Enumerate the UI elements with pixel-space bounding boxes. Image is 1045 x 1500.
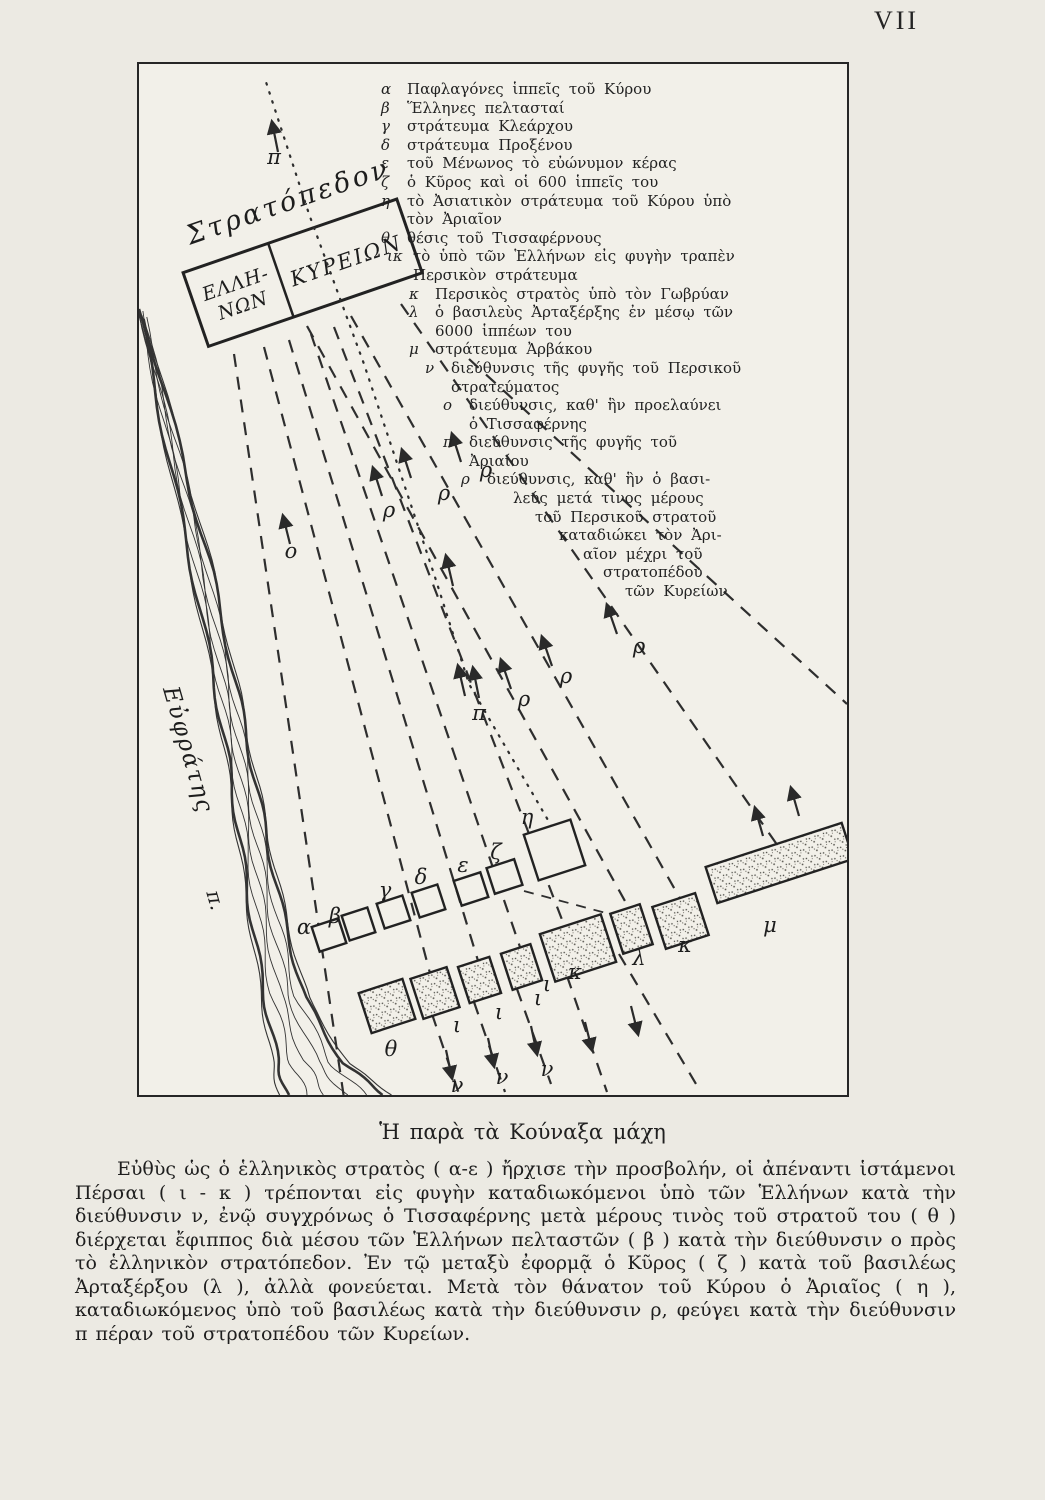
legend-text: τοῦ Μένωνος τὸ εὐώνυμον κέρας [407,154,847,173]
legend-key: ο [443,396,469,433]
map-letter-μ: μ [763,913,777,937]
map-letter-γ: γ [379,878,392,902]
map-letter-ι: ι [534,986,542,1010]
map-letter-ν: ν [451,1073,464,1095]
legend-key: ε [381,154,407,173]
legend-text: στράτευμα Ἀρβάκου [435,340,847,359]
legend-key: ρ [461,470,487,600]
legend-entry-θ: θθέσις τοῦ Τισσαφέρνους [381,229,847,248]
map-legend: αΠαφλαγόνες ἱππεῖς τοῦ ΚύρουβἝλληνες πελ… [381,80,847,601]
legend-entry-ικ: ικτὸ ὑπὸ τῶν Ἑλλήνων εἰς φυγὴν τραπὲνΠερ… [387,247,847,284]
map-letter-ν: ν [541,1057,554,1081]
legend-entry-ρ: ρδιεύθυνσις, καθ' ἣν ὁ βασι-λεύς μετά τι… [461,470,847,600]
map-letter-α: α [297,915,311,939]
map-letter-ρ: ρ [632,634,646,658]
river-name-label: Εὐφράτης [157,682,218,816]
legend-entry-β: βἝλληνες πελτασταί [381,99,847,118]
map-letter-θ: θ [385,1037,398,1061]
river-abbr-label: π. [201,886,230,912]
legend-text: τὸ Ἀσιατικὸν στράτευμα τοῦ Κύρου ὑπὸτὸν … [407,192,847,229]
legend-entry-λ: λὁ βασιλεὺς Ἀρταξέρξης ἐν μέσῳ τῶν6000 ἱ… [409,303,847,340]
legend-entry-ζ: ζὁ Κῦρος καὶ οἱ 600 ἱππεῖς του [381,173,847,192]
legend-entry-δ: δστράτευμα Προξένου [381,136,847,155]
legend-key: β [381,99,407,118]
legend-key: δ [381,136,407,155]
legend-entry-ο: οδιεύθυνσις, καθ' ἣν προελαύνειὁ Τισσαφέ… [443,396,847,433]
map-letter-ι: ι [543,972,551,996]
map-letter-η: η [521,805,534,829]
unit-box-greek [412,884,446,917]
unit-box-greek [454,872,489,905]
map-letter-π: π [266,145,282,169]
body-text: Εὐθὺς ὡς ὁ ἑλληνικὸς στρατὸς ( α-ε ) ἤρχ… [75,1158,956,1346]
map-letter-ρ: ρ [517,687,531,711]
map-letter-ρ: ρ [559,664,573,688]
map-letter-λ: λ [631,946,645,970]
unit-box-persian [410,967,459,1019]
unit-box-greek [342,907,376,940]
unit-box-persian [706,823,847,903]
legend-entry-η: ητὸ Ἀσιατικὸν στράτευμα τοῦ Κύρου ὑπὸτὸν… [381,192,847,229]
legend-key: α [381,80,407,99]
map-letter-ζ: ζ [490,840,503,864]
movement-arrow [631,1006,638,1034]
map-letter-ο: ο [285,539,298,563]
map-letter-β: β [328,904,341,928]
unit-box-persian [359,979,416,1033]
legend-entry-κ: κΠερσικὸς στρατὸς ὑπὸ τὸν Γωβρύαν [409,285,847,304]
page-number: VII [874,6,919,36]
map-letter-ι: ι [495,1000,503,1024]
legend-entry-π: πδιεύθυνσις τῆς φυγῆς τοῦἈριαίου [443,433,847,470]
legend-text: στράτευμα Προξένου [407,136,847,155]
map-letter-κ: κ [567,960,582,984]
legend-text: ὁ Κῦρος καὶ οἱ 600 ἱππεῖς του [407,173,847,192]
map-letter-δ: δ [415,865,428,889]
legend-entry-ε: ετοῦ Μένωνος τὸ εὐώνυμον κέρας [381,154,847,173]
legend-text: ὁ βασιλεὺς Ἀρταξέρξης ἐν μέσῳ τῶν6000 ἱπ… [435,303,847,340]
legend-key: η [381,192,407,229]
legend-text: στράτευμα Κλεάρχου [407,117,847,136]
map-letter-π: π [471,701,487,725]
legend-text: Ἕλληνες πελτασταί [407,99,847,118]
legend-key: ν [425,359,451,396]
legend-text: τὸ ὑπὸ τῶν Ἑλλήνων εἰς φυγὴν τραπὲνΠερσι… [413,247,847,284]
movement-arrow [488,1038,494,1066]
movement-arrow [501,660,511,689]
legend-text: διεύθυνσις, καθ' ἣν προελαύνειὁ Τισσαφέρ… [469,396,847,433]
legend-text: Παφλαγόνες ἱππεῖς τοῦ Κύρου [407,80,847,99]
legend-key: κ [409,285,435,304]
legend-key: π [443,433,469,470]
legend-key: ζ [381,173,407,192]
map-letter-ε: ε [457,853,468,877]
map-letter-ν: ν [496,1065,509,1089]
legend-text: διεύθυνσις τῆς φυγῆς τοῦ Περσικοῦστρατεύ… [451,359,847,396]
legend-entry-ν: νδιεύθυνσις τῆς φυγῆς τοῦ Περσικοῦστρατε… [425,359,847,396]
legend-entry-γ: γστράτευμα Κλεάρχου [381,117,847,136]
legend-key: λ [409,303,435,340]
movement-dashed-line [234,354,344,1095]
legend-key: μ [409,340,435,359]
unit-box-persian [458,957,501,1003]
legend-text: Περσικὸς στρατὸς ὑπὸ τὸν Γωβρύαν [435,285,847,304]
map-caption: Ἡ παρὰ τὰ Κούναξα μάχη [0,1120,1045,1144]
legend-text: διεύθυνσις, καθ' ἣν ὁ βασι-λεύς μετά τιν… [487,470,847,600]
map-letter-κ: κ [677,933,692,957]
movement-arrow [791,788,799,816]
legend-entry-α: αΠαφλαγόνες ἱππεῖς τοῦ Κύρου [381,80,847,99]
legend-entry-μ: μστράτευμα Ἀρβάκου [409,340,847,359]
movement-arrow [607,605,617,634]
legend-key: γ [381,117,407,136]
battle-map: Εὐφράτηςπ.ΕΛΛΗ-ΝΩΝΚΥΡΕΙΩΝΣτρατόπεδοναβγδ… [137,62,849,1097]
movement-dashed-line [619,954,699,1089]
map-letter-ι: ι [453,1013,461,1037]
legend-text: θέσις τοῦ Τισσαφέρνους [407,229,847,248]
book-page: VII Εὐφράτηςπ.ΕΛΛΗ-ΝΩΝΚΥΡΕΙΩΝΣτρατόπεδον… [0,0,1045,1500]
legend-key: θ [381,229,407,248]
legend-key: ικ [387,247,413,284]
movement-arrow [585,1022,592,1050]
cyrus-charge-line [524,891,617,916]
unit-box-persian [501,944,542,990]
legend-text: διεύθυνσις τῆς φυγῆς τοῦἈριαίου [469,433,847,470]
